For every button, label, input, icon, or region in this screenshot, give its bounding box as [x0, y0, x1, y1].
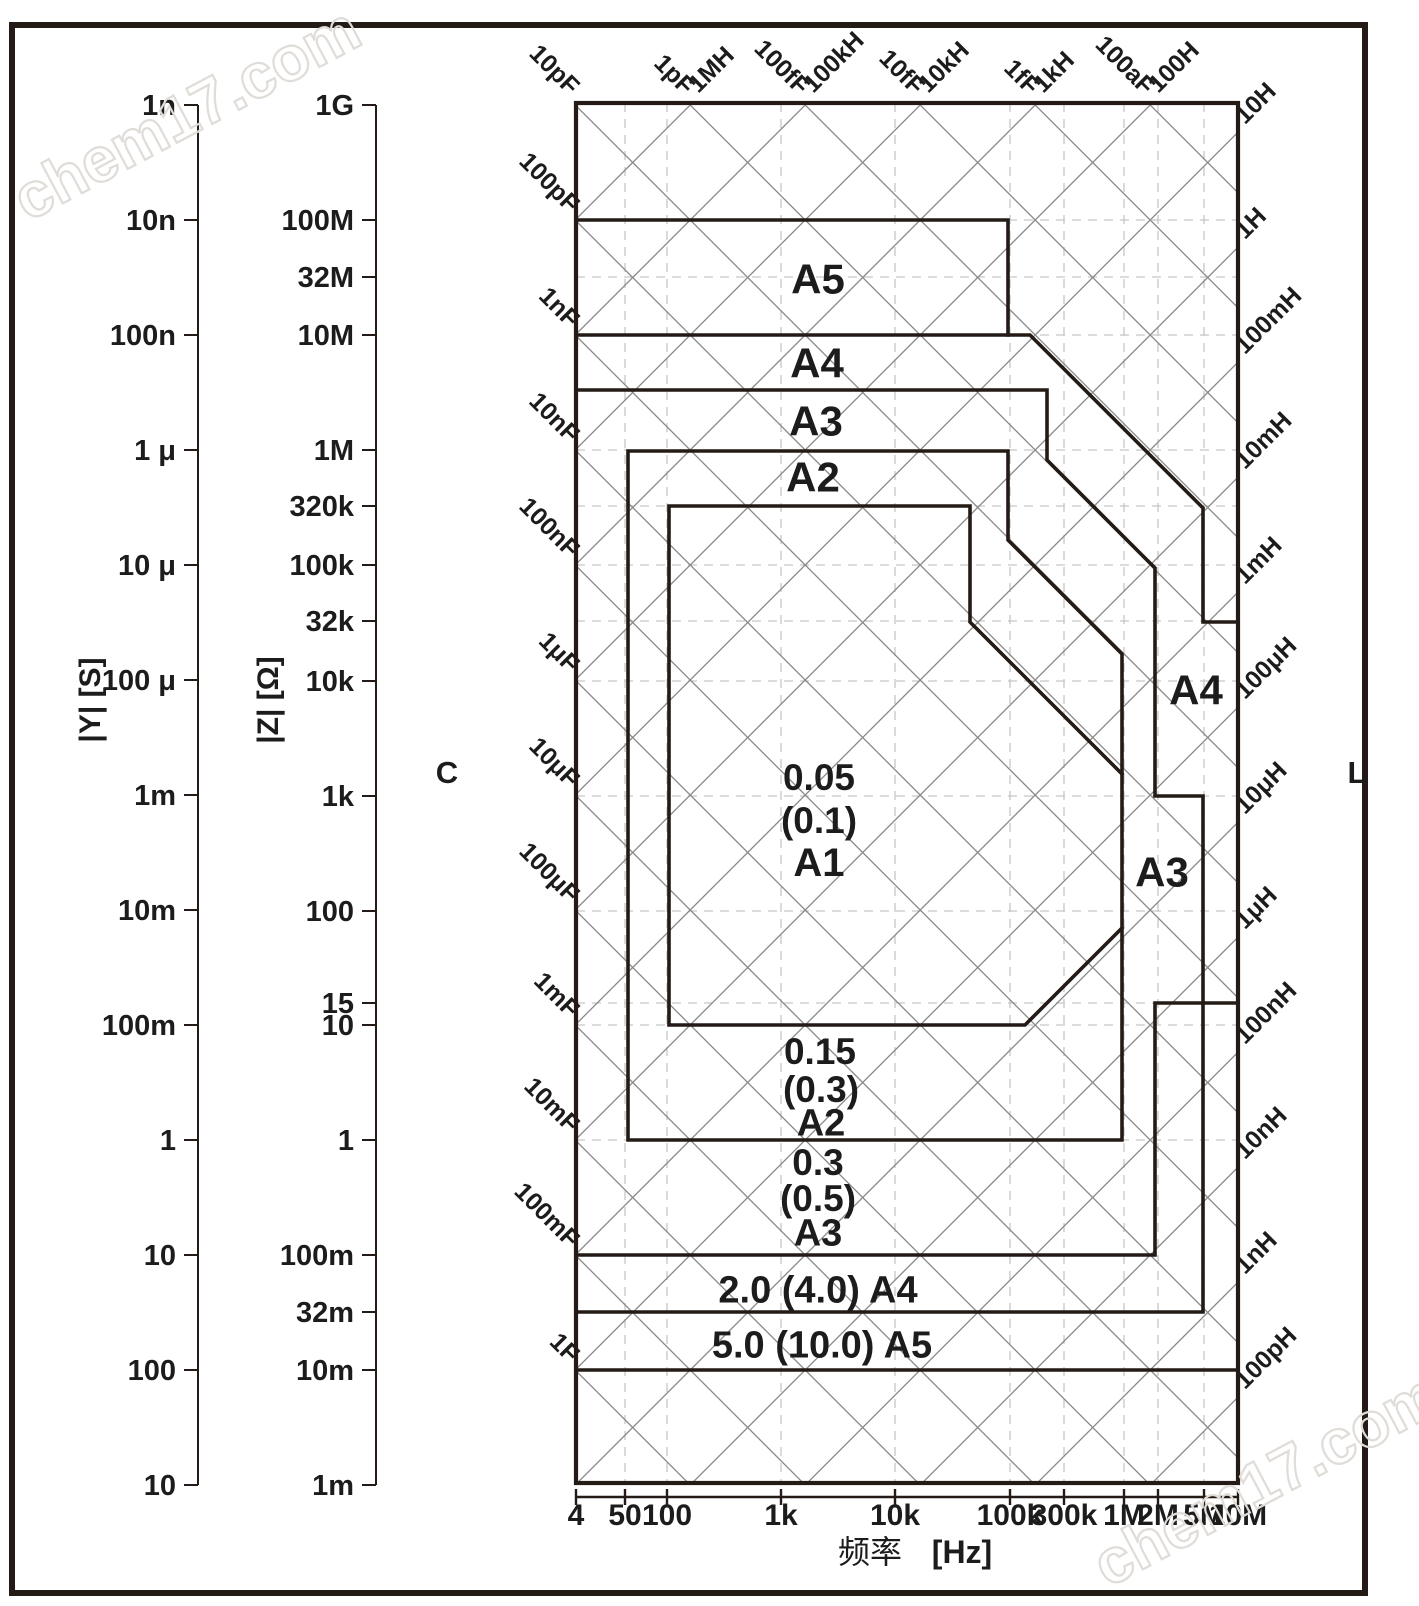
- admittance-axis-tick-label: 10 μ: [118, 550, 176, 582]
- impedance-axis: 1G100M32M10M1M320k100k32k10k1k1001510110…: [280, 90, 376, 1502]
- capacitance-line: [0, 0, 1419, 1606]
- inductance-line: [0, 0, 1419, 1606]
- impedance-axis-tick-label: 10m: [296, 1355, 354, 1387]
- annotation-a3: A3: [789, 398, 843, 445]
- capacitance-line: [0, 0, 1419, 1606]
- capacitance-line: [0, 0, 1419, 1606]
- capacitance-line: [0, 0, 1419, 1606]
- annotation-a5: A5: [791, 256, 845, 303]
- frequency-axis-unit: [Hz]: [932, 1534, 992, 1570]
- admittance-axis-tick-label: 100n: [110, 320, 176, 352]
- annotation-a3: A3: [1135, 849, 1189, 896]
- impedance-axis-tick-label: 100: [306, 896, 354, 928]
- inductance-line: [0, 0, 1419, 1606]
- admittance-axis-tick-label: 1 μ: [134, 435, 176, 467]
- inductance-line: [0, 0, 1419, 1606]
- annotation-a4: A4: [790, 340, 844, 387]
- capacitance-line: [0, 0, 1419, 1237]
- admittance-axis-tick-label: 10m: [118, 895, 176, 927]
- impedance-axis-tick-label: 32k: [306, 606, 355, 638]
- annotation-005: 0.05: [783, 757, 855, 798]
- admittance-axis-labels: 1n10n100n1 μ10 μ100 μ1m10m100m11010010: [102, 90, 176, 1502]
- capacitance-line: [0, 0, 1419, 1606]
- admittance-axis-tick-label: 10n: [126, 205, 176, 237]
- impedance-axis-tick-label: 1G: [315, 90, 354, 122]
- annotation-2040a4: 2.0 (4.0) A4: [718, 1269, 917, 1311]
- admittance-axis-tick-label: 1m: [134, 780, 176, 812]
- inductance-line: [0, 0, 1419, 1606]
- inductance-label: 1kH: [1028, 46, 1080, 98]
- impedance-axis-tick-label: 1M: [314, 435, 354, 467]
- admittance-axis-tick-label: 10: [144, 1470, 176, 1502]
- annotation-a1: A1: [793, 841, 844, 885]
- admittance-axis: 1n10n100n1 μ10 μ100 μ1m10m100m11010010: [102, 90, 198, 1502]
- lcr-accuracy-chart: 10pF1pF100fF10fF1fF100aF100pF1nF10nF100n…: [0, 0, 1419, 1606]
- annotation-50100a5: 5.0 (10.0) A5: [712, 1324, 932, 1366]
- impedance-axis-labels: 1G100M32M10M1M320k100k32k10k1k1001510110…: [280, 90, 355, 1502]
- capacitance-line: [0, 0, 1419, 1606]
- capacitance-label: 1F: [544, 1328, 584, 1368]
- inductance-label: 10kH: [913, 36, 975, 98]
- grid-diagonals: [0, 0, 1419, 1606]
- impedance-axis-tick-label: 1m: [312, 1470, 354, 1502]
- admittance-axis-title: |Y| [S]: [74, 657, 107, 742]
- inductance-line: [0, 0, 1419, 1606]
- annotation-a2: A2: [797, 1102, 846, 1144]
- inductance-line: [0, 468, 1419, 1606]
- inductance-label: 100H: [1143, 36, 1205, 98]
- watermark-bottom-right: chem17.com: [1082, 1359, 1419, 1600]
- impedance-axis-tick-label: 100m: [280, 1240, 354, 1272]
- annotation-c: C: [436, 755, 458, 790]
- capacitance-label: 10pF: [524, 39, 585, 100]
- annotation-a3: A3: [794, 1212, 843, 1254]
- inductance-line: [0, 123, 1419, 1606]
- capacitance-line: [0, 0, 1419, 1606]
- admittance-axis-tick-label: 10: [144, 1240, 176, 1272]
- capacitance-line: [0, 0, 1419, 1606]
- capacitance-line: [0, 0, 1419, 1122]
- inductance-label: 1MH: [683, 41, 740, 98]
- inductance-label: 1H: [1229, 202, 1271, 244]
- capacitance-label: 100aF: [1090, 30, 1160, 100]
- impedance-axis-tick-label: 32M: [298, 262, 354, 294]
- admittance-axis-tick-label: 100 μ: [102, 665, 176, 697]
- capacitance-line: [0, 0, 1419, 1606]
- capacitance-label: 100mF: [509, 1177, 585, 1253]
- annotation-01: (0.1): [781, 800, 857, 841]
- impedance-axis-tick-label: 32m: [296, 1297, 354, 1329]
- impedance-axis-tick-label: 10M: [298, 320, 354, 352]
- capacitance-line: [0, 0, 1419, 1606]
- impedance-axis-tick-label: 100M: [281, 205, 354, 237]
- impedance-axis-tick-label: 320k: [289, 491, 354, 523]
- annotation-a2: A2: [786, 454, 840, 501]
- annotation-a4: A4: [1169, 667, 1223, 714]
- inductance-label: 100mH: [1229, 282, 1307, 360]
- annotation-015: 0.15: [784, 1031, 856, 1072]
- accuracy-chart-page: 10pF1pF100fF10fF1fF100aF100pF1nF10nF100n…: [0, 0, 1419, 1606]
- admittance-axis-tick-label: 100m: [102, 1010, 176, 1042]
- admittance-axis-tick-label: 100: [128, 1355, 176, 1387]
- impedance-axis-tick-label: 100k: [289, 550, 354, 582]
- inductance-line: [0, 238, 1419, 1606]
- inductance-line: [0, 353, 1419, 1606]
- capacitance-label: 100fF: [749, 34, 815, 100]
- annotation-03: 0.3: [792, 1142, 843, 1183]
- impedance-axis-tick-label: 1: [338, 1125, 354, 1157]
- impedance-axis-tick-label: 10k: [306, 666, 355, 698]
- inductance-line: [0, 0, 1419, 1606]
- impedance-axis-title: |Z| [Ω]: [252, 656, 285, 743]
- impedance-axis-tick-label: 1k: [322, 781, 355, 813]
- inductance-line: [0, 0, 1419, 1606]
- frequency-axis-title: 频率: [838, 1534, 902, 1570]
- watermark-text: chem17.com: [1082, 1359, 1419, 1600]
- capacitance-line: [0, 0, 1419, 1606]
- inductance-label: 100pH: [1229, 1322, 1302, 1395]
- inductance-line: [0, 0, 1419, 1606]
- inductance-label: 100μH: [1229, 632, 1302, 705]
- inductance-line: [0, 0, 1419, 1606]
- capacitance-line: [0, 0, 1419, 1606]
- inductance-line: [0, 0, 1419, 1606]
- annotation-l: L: [1348, 755, 1367, 790]
- zone-boundaries: [576, 220, 1238, 1370]
- inductance-label: 100nH: [1229, 977, 1302, 1050]
- inductance-line: [0, 0, 1419, 1606]
- axis-titles: |Y| [S]|Z| [Ω]: [74, 656, 285, 743]
- admittance-axis-tick-label: 1: [160, 1125, 176, 1157]
- inductance-line: [0, 8, 1419, 1606]
- inductance-line: [0, 0, 1419, 1606]
- inductance-label: 100kH: [798, 26, 870, 98]
- capacitance-line: [0, 0, 1419, 1582]
- impedance-axis-tick-label: 10: [322, 1010, 354, 1042]
